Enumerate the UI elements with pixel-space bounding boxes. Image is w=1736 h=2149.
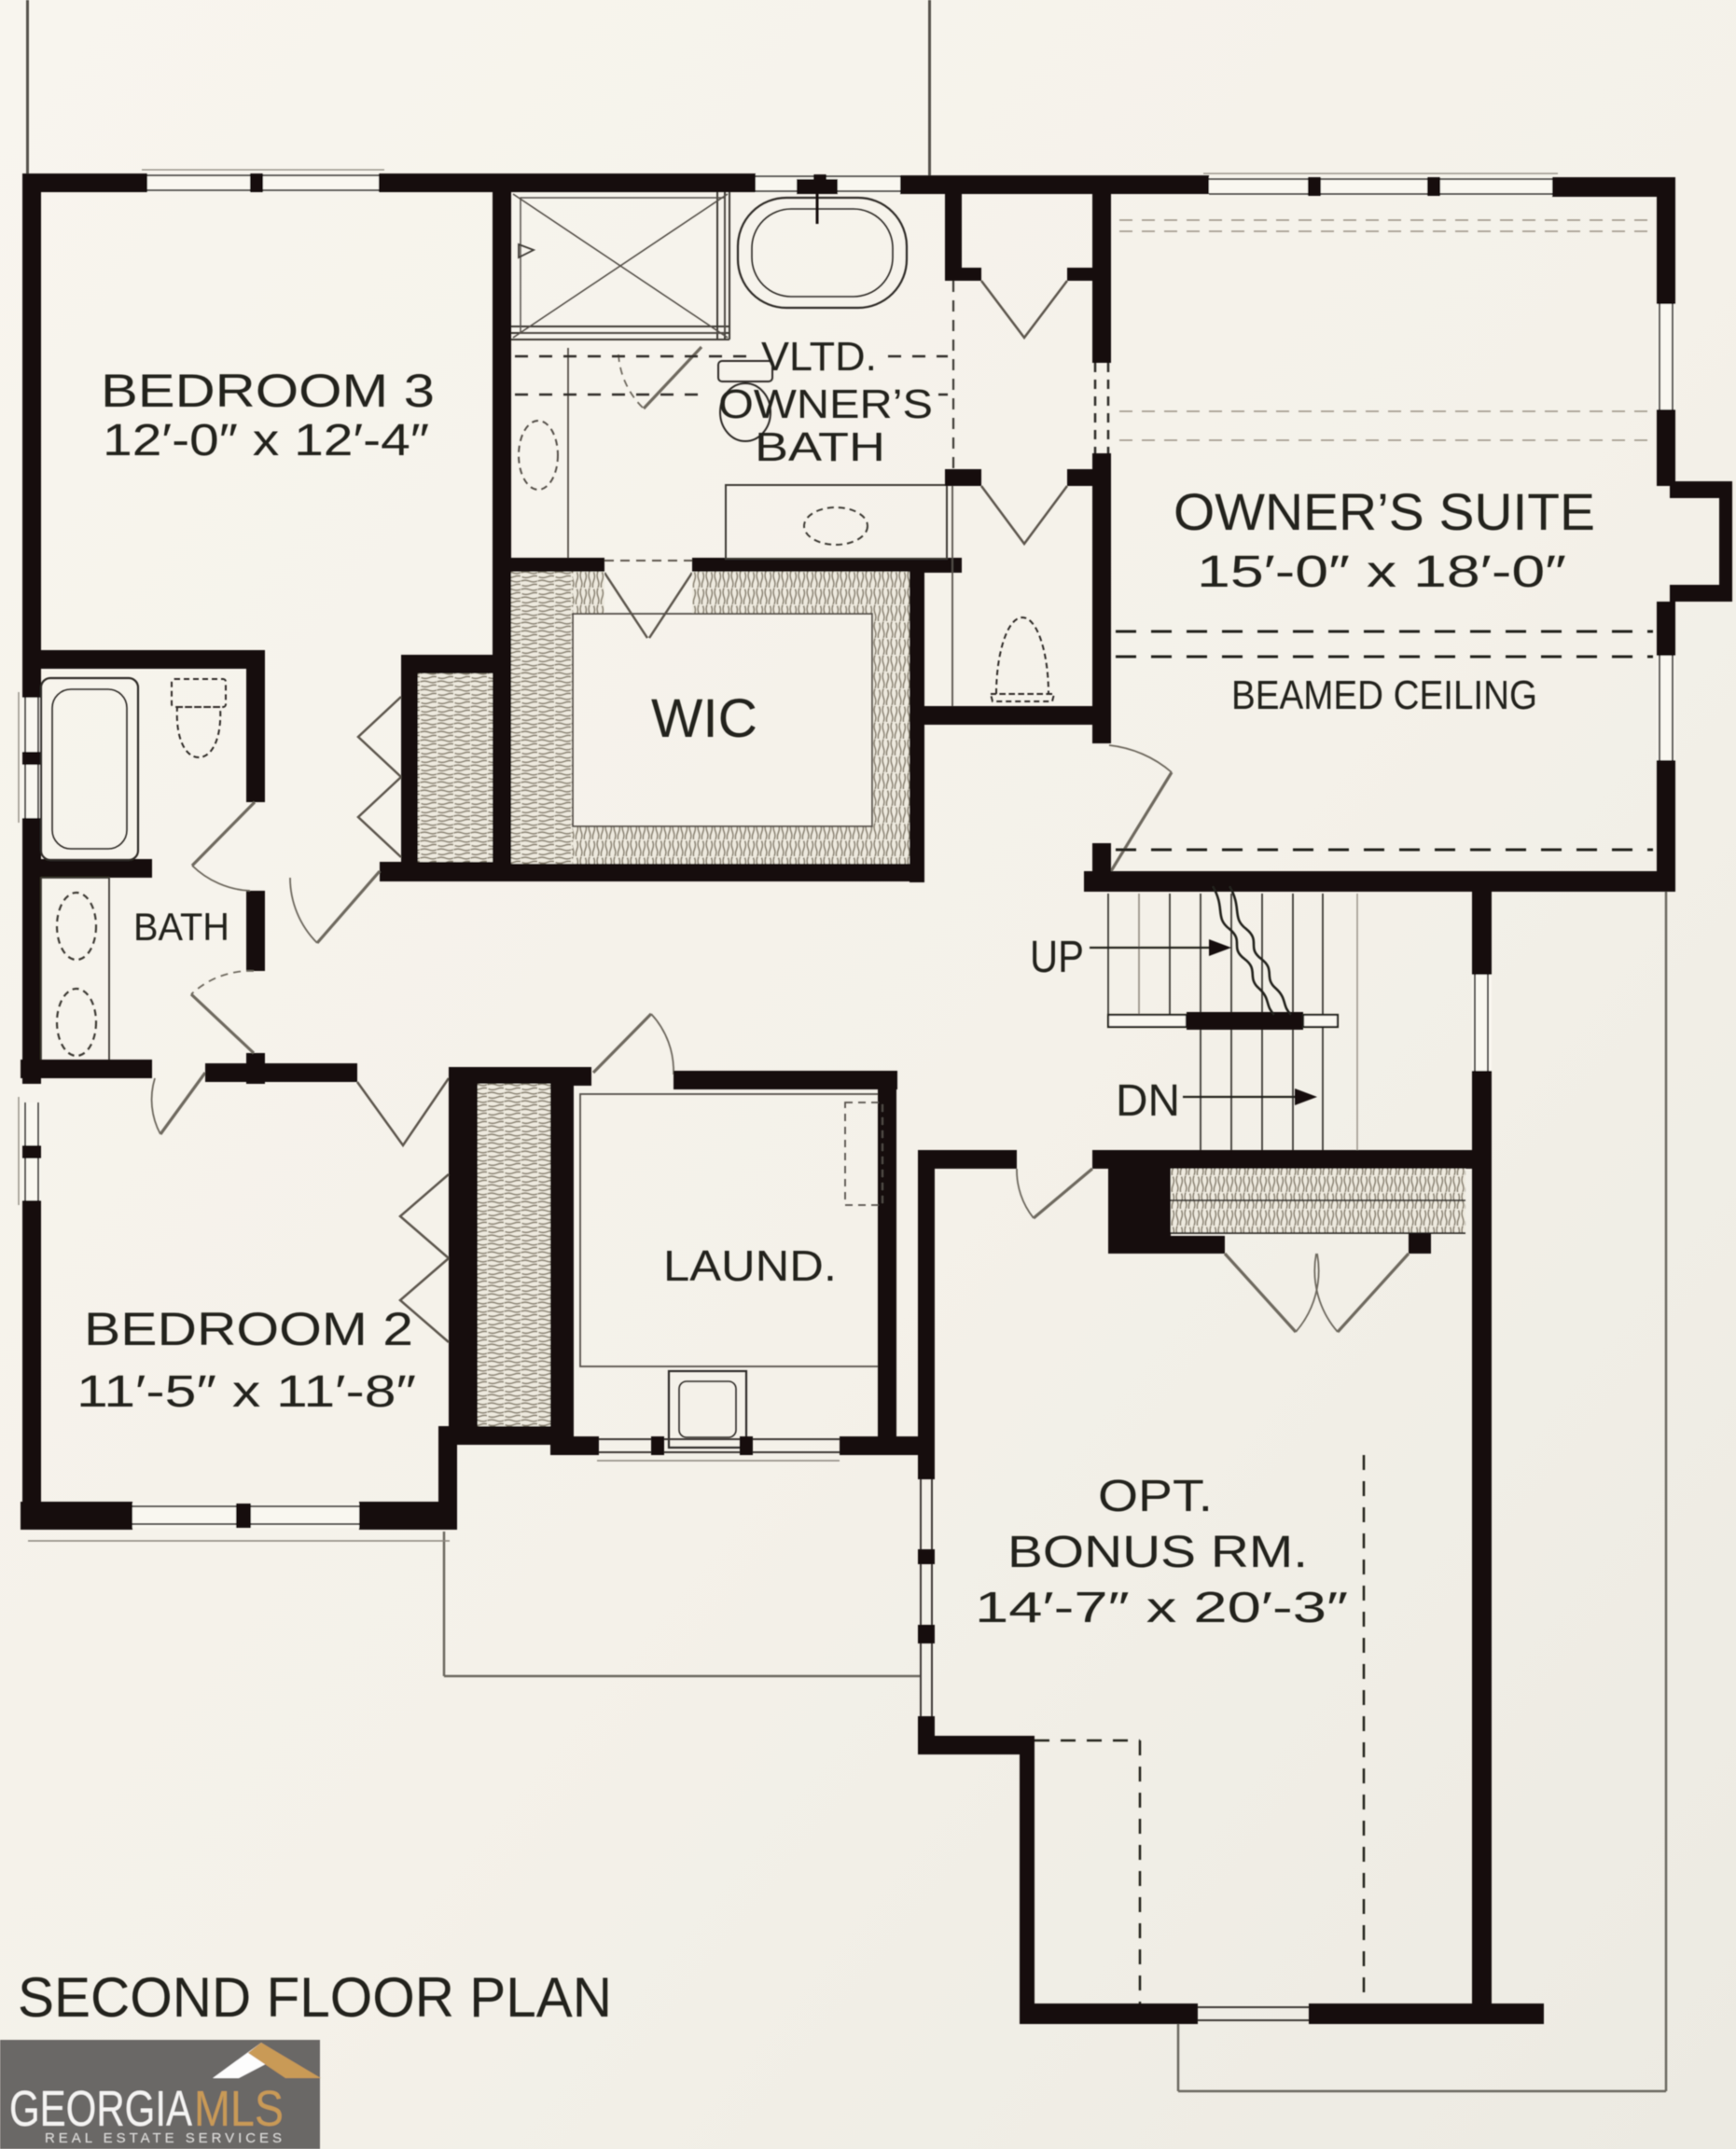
svg-text:DN: DN xyxy=(1116,1076,1180,1126)
svg-text:BEDROOM 2: BEDROOM 2 xyxy=(84,1303,413,1355)
svg-text:OWNER’S: OWNER’S xyxy=(718,381,933,427)
svg-text:11′-5″ x 11′-8″: 11′-5″ x 11′-8″ xyxy=(76,1367,416,1417)
svg-text:WIC: WIC xyxy=(651,688,757,749)
svg-text:BATH: BATH xyxy=(755,424,885,470)
svg-text:GEORGIA: GEORGIA xyxy=(9,2081,192,2137)
svg-text:15′-0″ x 18′-0″: 15′-0″ x 18′-0″ xyxy=(1197,548,1566,597)
svg-text:REAL ESTATE SERVICES: REAL ESTATE SERVICES xyxy=(45,2130,285,2146)
svg-text:OPT.: OPT. xyxy=(1098,1472,1213,1521)
svg-text:14′-7″ x 20′-3″: 14′-7″ x 20′-3″ xyxy=(975,1583,1348,1631)
svg-text:BEDROOM 3: BEDROOM 3 xyxy=(101,365,435,417)
svg-text:12′-0″ x 12′-4″: 12′-0″ x 12′-4″ xyxy=(103,416,429,465)
svg-text:BATH: BATH xyxy=(133,905,229,949)
svg-text:OWNER’S SUITE: OWNER’S SUITE xyxy=(1174,482,1595,541)
svg-text:VLTD.: VLTD. xyxy=(761,334,877,380)
svg-text:BEAMED CEILING: BEAMED CEILING xyxy=(1231,672,1537,718)
svg-text:LAUND.: LAUND. xyxy=(663,1241,837,1290)
svg-text:UP: UP xyxy=(1030,933,1084,982)
svg-text:MLS: MLS xyxy=(194,2081,284,2137)
svg-text:SECOND FLOOR PLAN: SECOND FLOOR PLAN xyxy=(18,1966,612,2029)
svg-text:BONUS RM.: BONUS RM. xyxy=(1007,1528,1308,1577)
